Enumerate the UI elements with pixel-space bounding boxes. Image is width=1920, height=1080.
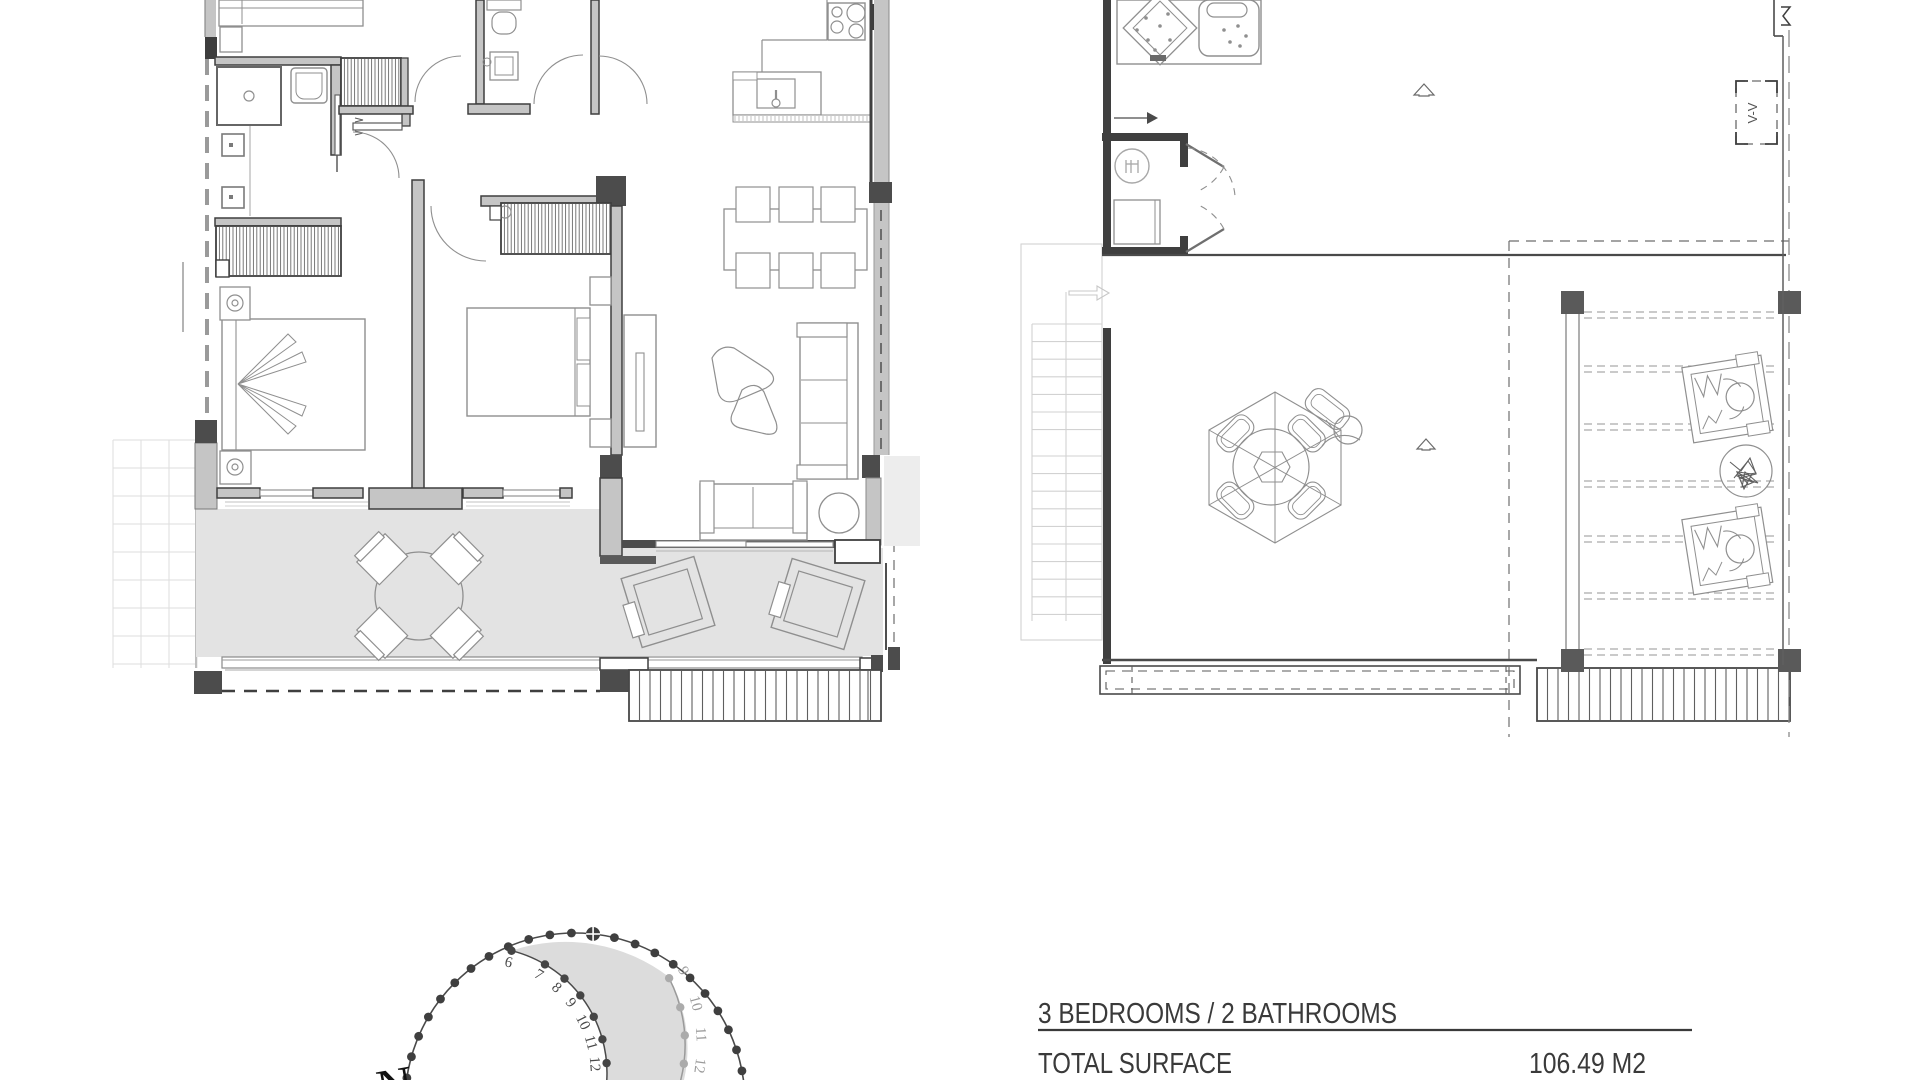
svg-text:106.49 M2: 106.49 M2 [1529,1048,1646,1080]
svg-text:12: 12 [690,1057,708,1074]
svg-text:TOTAL SURFACE: TOTAL SURFACE [1038,1048,1232,1080]
svg-text:3 BEDROOMS / 2 BATHROOMS: 3 BEDROOMS / 2 BATHROOMS [1038,998,1397,1030]
svg-text:V-V: V-V [1745,102,1760,123]
svg-text:11: 11 [692,1027,709,1042]
svg-text:12: 12 [586,1056,603,1072]
